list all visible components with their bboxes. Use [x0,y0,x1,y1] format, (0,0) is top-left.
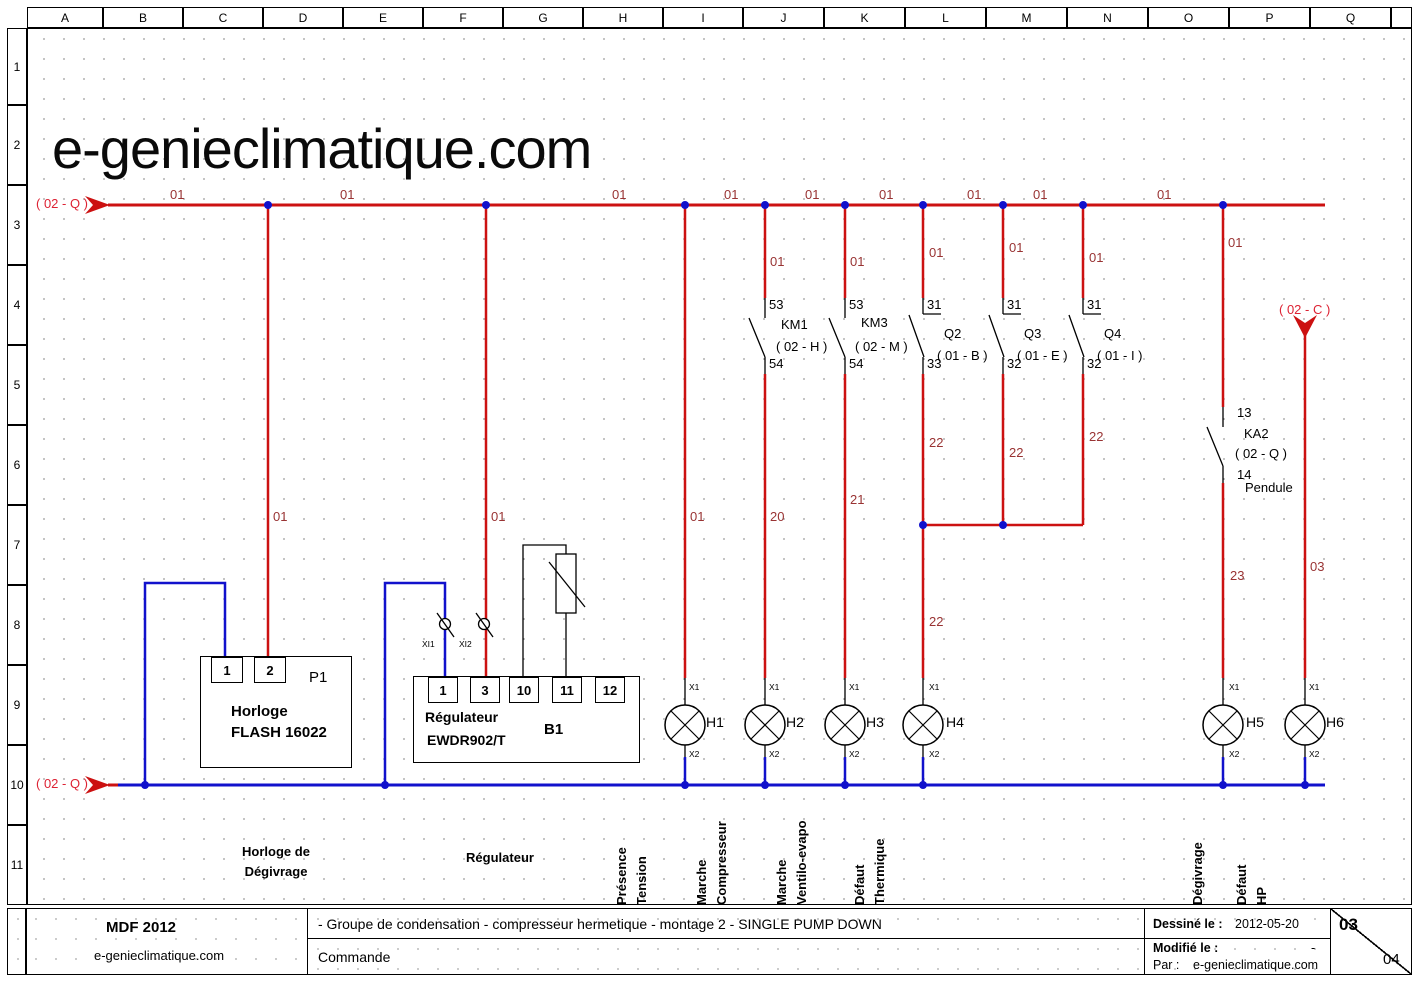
wire-21: 21 [850,493,864,507]
junction-dot [919,781,927,789]
wire-01-seg9: 01 [1157,188,1171,202]
wire-01-i: 01 [690,510,704,524]
sensor-b1-label: B1 [544,721,563,738]
regulator-name: Régulateur [425,709,498,725]
comp-q3: Q3 [1024,327,1041,341]
drawn-label: Dessiné le : [1153,917,1222,931]
term-h6-x1: X1 [1309,683,1319,692]
term-h2-x1: X1 [769,683,779,692]
term-h5-x2: X2 [1229,750,1239,759]
junction-dot [482,201,490,209]
junction-dot [681,201,689,209]
wire-01-k: 01 [850,255,864,269]
comp-q3-ref: ( 01 - E ) [1017,349,1068,363]
terminal-1: 1 [428,677,458,703]
term-h2-x2: X2 [769,750,779,759]
term-q4-31: 31 [1087,298,1101,312]
component-horloge-p1: 12 P1 Horloge FLASH 16022 [200,656,352,768]
drawn-date: 2012-05-20 [1235,917,1299,931]
junction-dot [919,521,927,529]
term-h1-x1: X1 [689,683,699,692]
comp-ka2: KA2 [1244,427,1269,441]
junction-dot [141,781,149,789]
terminal-3: 3 [470,677,500,703]
arrow-02q-top [85,196,110,214]
wire-22-l-upper: 22 [929,436,943,450]
contact-no-ka2 [1207,407,1223,483]
page-total: 04 [1383,951,1400,968]
wire-01-p: 01 [1228,236,1242,250]
vlabel-defaut-hp: DéfautHP [1232,815,1272,905]
func-horloge-line2: Dégivrage [245,865,308,879]
wire-01-seg5: 01 [805,188,819,202]
title-block-drawn-cell: Dessiné le : 2012-05-20 [1144,908,1331,939]
lamp-h5-label: H5 [1246,715,1264,730]
junction-dot [919,201,927,209]
comp-q4-ref: ( 01 - I ) [1097,349,1143,363]
p1-name: Horloge [231,703,288,720]
component-regulateur: 13101112 Régulateur EWDR902/T B1 [413,676,640,763]
modified-label: Modifié le : [1153,941,1218,955]
page-number: 03 [1339,915,1358,935]
junction-dot [1079,201,1087,209]
junction-dot [264,201,272,209]
junction-dot [1219,781,1227,789]
vlabel-marche-ventilo-evapo: MarcheVentilo-evapo [772,815,812,905]
wire-22-l-lower: 22 [929,615,943,629]
contact-symbols [749,298,1223,483]
term-h4-x1: X1 [929,683,939,692]
term-q2-31: 31 [927,298,941,312]
terminal-2: 2 [254,657,286,683]
conn-xi1: XI1 [422,640,435,649]
junction-dot [681,781,689,789]
wire-20: 20 [770,510,784,524]
terminal-10: 10 [509,677,539,703]
junction-dot [999,201,1007,209]
wire-01-n: 01 [1089,251,1103,265]
company-website: e-genieclimatique.com [94,948,224,963]
lamp-symbols [665,678,1325,757]
terminal-11: 11 [552,677,582,703]
wire-01-seg6: 01 [879,188,893,202]
contact-no-km1 [749,298,765,374]
wire-23: 23 [1230,569,1244,583]
vlabel-defaut-thermique: DéfautThermique [850,815,890,905]
comp-q4: Q4 [1104,327,1121,341]
lamp-h6-label: H6 [1326,715,1344,730]
junction-dot [1301,781,1309,789]
junction-dot [841,201,849,209]
term-q3-31: 31 [1007,298,1021,312]
drawing-subtitle: Commande [318,949,390,965]
contact-no-km3 [829,298,845,374]
by-value: e-genieclimatique.com [1193,958,1318,972]
term-h5-x1: X1 [1229,683,1239,692]
func-horloge-line1: Horloge de [242,845,310,859]
company-name: MDF 2012 [106,919,176,936]
wire-01-l: 01 [929,246,943,260]
junction-dot [1219,201,1227,209]
vlabel-marche-compresseur: MarcheCompresseur [692,815,732,905]
ref-02q-bottom: ( 02 - Q ) [36,777,88,791]
wire-01-seg7: 01 [967,188,981,202]
comp-km1-ref: ( 02 - H ) [776,340,827,354]
wire-01-f: 01 [491,510,505,524]
term-h1-x2: X2 [689,750,699,759]
junction-dot [841,781,849,789]
comp-ka2-ref: ( 02 - Q ) [1235,447,1287,461]
junction-dot [761,201,769,209]
wire-01-seg3: 01 [612,188,626,202]
terminal-12: 12 [595,677,625,703]
comp-km1: KM1 [781,318,808,332]
term-km3-54: 54 [849,357,863,371]
lamp-h1-label: H1 [706,715,724,730]
title-block-modified-cell: Modifié le : - Par : e-genieclimatique.c… [1144,938,1331,975]
term-km1-54: 54 [769,357,783,371]
title-block-description-cell: - Groupe de condensation - compresseur h… [307,908,1145,939]
comp-pendule: Pendule [1245,481,1293,495]
arrow-02q-bottom [85,776,110,794]
wire-01-seg8: 01 [1033,188,1047,202]
term-h4-x2: X2 [929,750,939,759]
arrow-02c-down [1293,315,1317,338]
term-h3-x2: X2 [849,750,859,759]
vlabel-degivrage: Dégivrage [1188,815,1208,905]
title-block-subtitle-cell: Commande [307,938,1145,975]
wire-01-seg2: 01 [340,188,354,202]
p1-model: FLASH 16022 [231,724,327,741]
comp-q2: Q2 [944,327,961,341]
ref-02c: ( 02 - C ) [1279,303,1330,317]
wire-03: 03 [1310,560,1324,574]
term-km3-53: 53 [849,298,863,312]
term-h6-x2: X2 [1309,750,1319,759]
schematic-page: ABCDEFGHIJKLMNOPQ 1234567891011 e-geniec… [0,0,1420,985]
lamp-h2-label: H2 [786,715,804,730]
comp-km3-ref: ( 02 - M ) [855,340,908,354]
junction-dot [761,781,769,789]
wire-01-seg4: 01 [724,188,738,202]
wire-22-n: 22 [1089,430,1103,444]
title-block-company-cell: MDF 2012 e-genieclimatique.com [25,908,308,975]
wire-01-d: 01 [273,510,287,524]
regulator-model: EWDR902/T [427,732,506,748]
term-ka2-13: 13 [1237,406,1251,420]
drawing-description: - Groupe de condensation - compresseur h… [318,916,882,932]
term-km1-53: 53 [769,298,783,312]
by-label: Par : [1153,958,1179,972]
wire-01-m: 01 [1009,241,1023,255]
term-h3-x1: X1 [849,683,859,692]
func-regulateur: Régulateur [466,851,534,865]
junction-dot [999,521,1007,529]
vlabel-presence-tension: PrésenceTension [612,815,652,905]
comp-km3: KM3 [861,316,888,330]
conn-xi2: XI2 [459,640,472,649]
junction-dot [381,781,389,789]
title-block-page-cell: 03 04 [1330,908,1412,975]
ref-02q-top: ( 02 - Q ) [36,197,88,211]
title-block-spacer [7,908,27,975]
comp-q2-ref: ( 01 - B ) [937,349,988,363]
modified-date: - [1311,941,1315,955]
lamp-h3-label: H3 [866,715,884,730]
p1-ref: P1 [309,669,327,686]
wire-22-m: 22 [1009,446,1023,460]
black-wires [523,545,585,678]
wire-01-seg1: 01 [170,188,184,202]
lamp-h4-label: H4 [946,715,964,730]
terminal-1: 1 [211,657,243,683]
wire-01-j: 01 [770,255,784,269]
